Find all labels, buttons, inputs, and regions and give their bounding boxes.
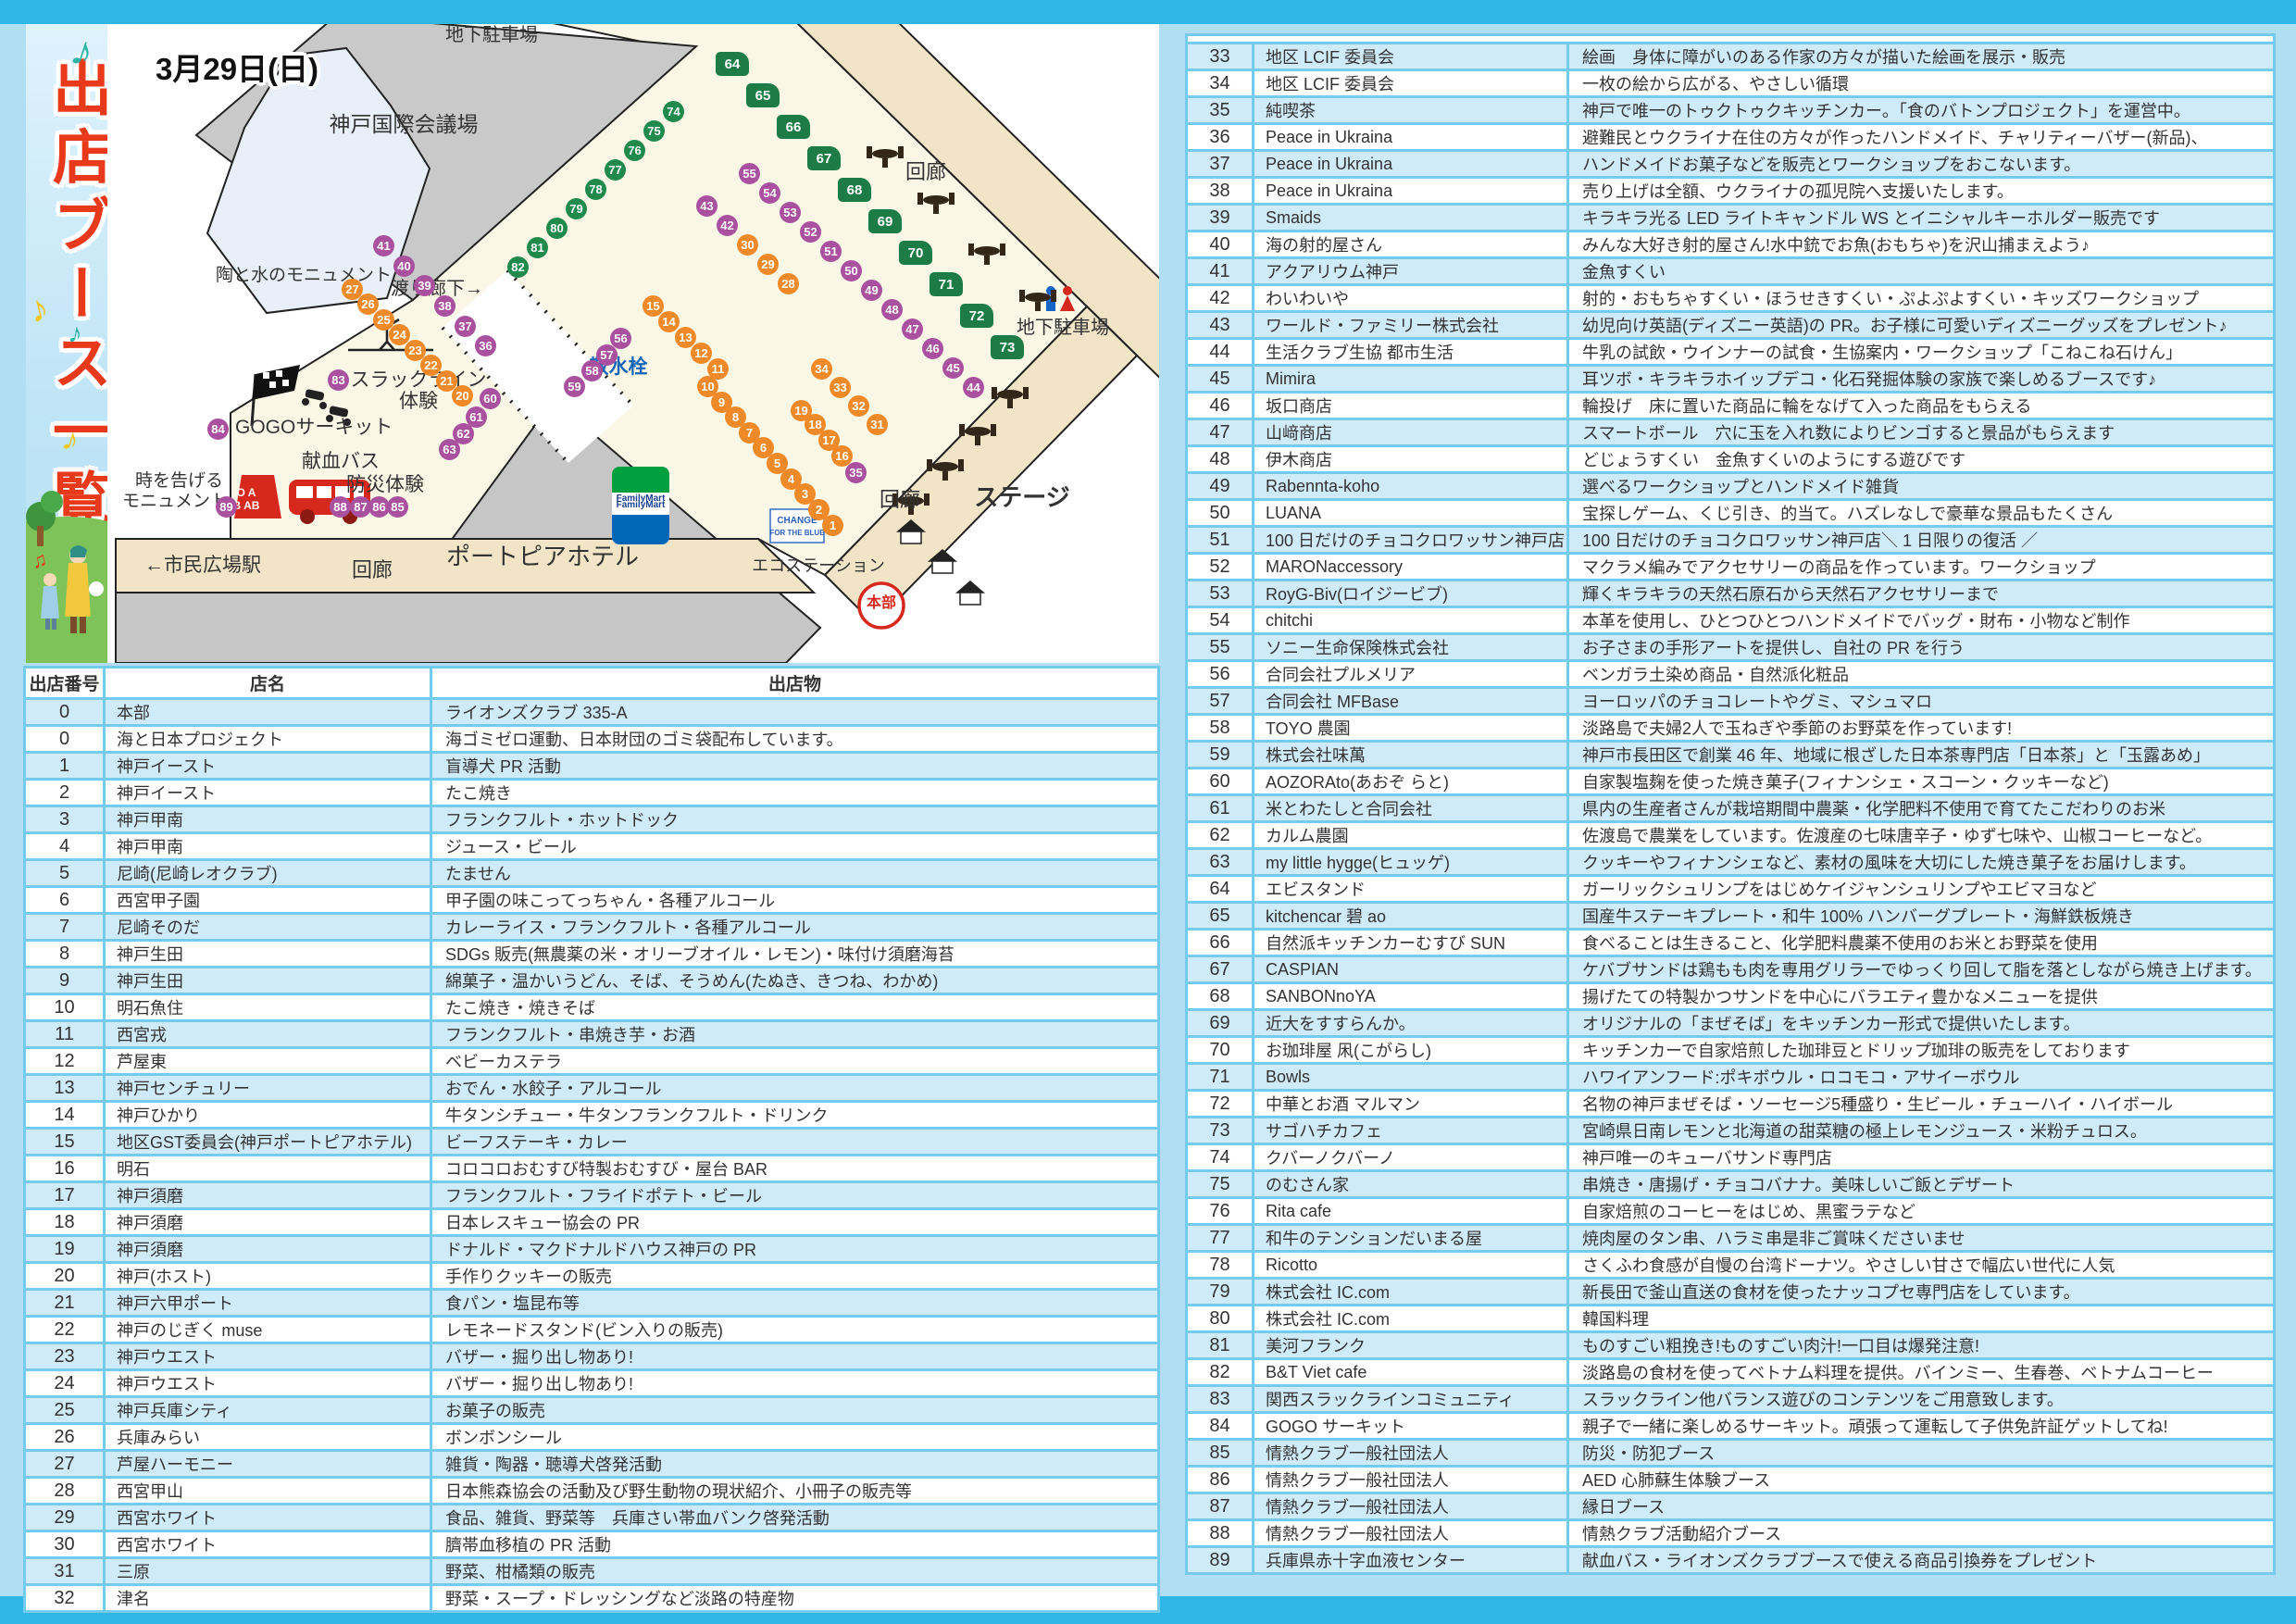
- shop-name: 神戸六甲ポート: [105, 1290, 431, 1317]
- table-row: 78Ricottoさくふわ食感が自慢の台湾ドーナツ。やさしい甘さで幅広い世代に人…: [1187, 1252, 2275, 1279]
- table-row: 24神戸ウエストバザー・掘り出し物あり!: [25, 1370, 1159, 1397]
- shop-name: 西宮ホワイト: [105, 1505, 431, 1531]
- booth-number: 87: [1187, 1493, 1254, 1520]
- header-shop-name: 店名: [105, 668, 431, 699]
- products: 避難民とウクライナ在住の方々が作ったハンドメイド、チャリティーバザー(新品)、: [1568, 124, 2275, 151]
- shop-name: 生活クラブ生協 都市生活: [1254, 339, 1568, 366]
- shop-name: Peace in Ukraina: [1254, 151, 1568, 178]
- booth-marker: 33: [830, 377, 851, 398]
- products: 一枚の絵から広がる、やさしい循環: [1568, 70, 2275, 97]
- products: おでん・水餃子・アルコール: [431, 1075, 1159, 1102]
- products: 牛乳の試飲・ウインナーの試食・生協案内・ワークショップ「こねこね石けん」: [1568, 339, 2275, 366]
- shop-name: my little hygge(ヒュッゲ): [1254, 849, 1568, 876]
- booth-marker: 77: [605, 159, 626, 181]
- shop-name: Rita cafe: [1254, 1198, 1568, 1225]
- booth-number: 15: [25, 1129, 105, 1156]
- shop-name: 西宮甲子園: [105, 887, 431, 914]
- booth-marker: 81: [527, 237, 548, 258]
- booth-number: 80: [1187, 1305, 1254, 1332]
- table-row: 28西宮甲山日本熊森協会の活動及び野生動物の現状紹介、小冊子の販売等: [25, 1478, 1159, 1505]
- booth-number: 46: [1187, 393, 1254, 419]
- shop-name: 神戸兵庫シティ: [105, 1397, 431, 1424]
- table-row: 74クバーノクバーノ神戸唯一のキューバサンド専門店: [1187, 1144, 2275, 1171]
- venue-map: FamilyMart CHANGE FOR THE BLUE: [107, 24, 1159, 663]
- table-row: 65kitchencar 碧 ao国産牛ステーキプレート・和牛 100% ハンバ…: [1187, 903, 2275, 930]
- products: 本革を使用し、ひとつひとつハンドメイドでバッグ・財布・小物など制作: [1568, 607, 2275, 634]
- products: 揚げたての特製かつサンドを中心にバラエティ豊かなメニューを提供: [1568, 983, 2275, 1010]
- shop-name: アクアリウム神戸: [1254, 258, 1568, 285]
- products: 食パン・塩昆布等: [431, 1290, 1159, 1317]
- table-row: 51100 日だけのチョコクロワッサン神戸店100 日だけのチョコクロワッサン神…: [1187, 527, 2275, 554]
- products: お菓子の販売: [431, 1397, 1159, 1424]
- products: 海ゴミゼロ運動、日本財団のゴミ袋配布しています。: [431, 726, 1159, 753]
- booth-marker: 28: [778, 273, 799, 294]
- products: 防災・防犯ブース: [1568, 1440, 2275, 1467]
- booth-marker: 38: [434, 295, 455, 317]
- shop-name: Peace in Ukraina: [1254, 178, 1568, 205]
- table-row: 23神戸ウエストバザー・掘り出し物あり!: [25, 1343, 1159, 1370]
- table-row: 8神戸生田SDGs 販売(無農薬の米・オリーブオイル・レモン)・味付け須磨海苔: [25, 941, 1159, 968]
- table-row: 31三原野菜、柑橘類の販売: [25, 1558, 1159, 1585]
- booth-marker: 44: [963, 377, 984, 398]
- table-row: 52MARONaccessoryマクラメ編みでアクセサリーの商品を作っています。…: [1187, 554, 2275, 581]
- table-row: 64エビスタンドガーリックシュリンプをはじめケイジャンシュリンプやエビマヨなど: [1187, 876, 2275, 903]
- booth-number: 12: [25, 1048, 105, 1075]
- booth-marker: 31: [867, 414, 888, 435]
- header-products: 出店物: [431, 668, 1159, 699]
- table-row: 44生活クラブ生協 都市生活牛乳の試飲・ウインナーの試食・生協案内・ワークショッ…: [1187, 339, 2275, 366]
- table-row: 20神戸(ホスト)手作りクッキーの販売: [25, 1263, 1159, 1290]
- booth-number: 7: [25, 914, 105, 941]
- table-row: 79株式会社 IC.com新長田で釜山直送の食材を使ったナッコプセ専門店をしてい…: [1187, 1279, 2275, 1305]
- products: 野菜・スープ・ドレッシングなど淡路の特産物: [431, 1585, 1159, 1612]
- title-strip: 出店ブース一覧 ♪♪♪♪ ♫: [26, 24, 107, 663]
- table-row: 80株式会社 IC.com韓国料理: [1187, 1305, 2275, 1332]
- shop-name: 神戸甲南: [105, 833, 431, 860]
- booth-marker: 41: [373, 235, 394, 256]
- booth-marker: 75: [643, 120, 665, 142]
- table-row: 71Bowlsハワイアンフード:ポキボウル・ロコモコ・アサイーボウル: [1187, 1064, 2275, 1091]
- products: 情熱クラブ活動紹介ブース: [1568, 1520, 2275, 1547]
- table-row: 5尼崎(尼崎レオクラブ)たません: [25, 860, 1159, 887]
- products: 献血バス・ライオンズクラブブースで使える商品引換券をプレゼント: [1568, 1547, 2275, 1574]
- shop-name: 株式会社味萬: [1254, 742, 1568, 768]
- familymart-text: FamilyMart: [617, 494, 666, 505]
- booth-number: 88: [1187, 1520, 1254, 1547]
- table-row: 19神戸須磨ドナルド・マクドナルドハウス神戸の PR: [25, 1236, 1159, 1263]
- products: 耳ツボ・キラキラホイップデコ・化石発掘体験の家族で楽しめるブースです♪: [1568, 366, 2275, 393]
- booth-number: 82: [1187, 1359, 1254, 1386]
- booth-number: 26: [25, 1424, 105, 1451]
- products: 射的・おもちゃすくい・ほうせきすくい・ぷよぷよすくい・キッズワークショップ: [1568, 285, 2275, 312]
- booth-marker: 12: [691, 343, 712, 364]
- table-row: 76Rita cafe自家焙煎のコーヒーをはじめ、黒蜜ラテなど: [1187, 1198, 2275, 1225]
- booth-number: 21: [25, 1290, 105, 1317]
- table-row: 81美河フランクものすごい粗挽き!ものすごい肉汁!一口目は爆発注意!: [1187, 1332, 2275, 1359]
- shop-name: B&T Viet cafe: [1254, 1359, 1568, 1386]
- shop-name: 中華とお酒 マルマン: [1254, 1091, 1568, 1118]
- booth-marker: 59: [564, 376, 585, 397]
- table-row: 37Peace in Ukrainaハンドメイドお菓子などを販売とワークショップ…: [1187, 151, 2275, 178]
- booth-number: 57: [1187, 688, 1254, 715]
- products: ライオンズクラブ 335-A: [431, 699, 1159, 726]
- table-row: 21神戸六甲ポート食パン・塩昆布等: [25, 1290, 1159, 1317]
- table-row: 61米とわたしと合同会社県内の生産者さんが栽培期間中農薬・化学肥料不使用で育てた…: [1187, 795, 2275, 822]
- products: フランクフルト・ホットドック: [431, 806, 1159, 833]
- products: 神戸市長田区で創業 46 年、地域に根ざした日本茶専門店「日本茶」と「玉露あめ」: [1568, 742, 2275, 768]
- booth-marker: 1: [822, 515, 843, 536]
- table-row: 34地区 LCIF 委員会一枚の絵から広がる、やさしい循環: [1187, 70, 2275, 97]
- shop-name: 自然派キッチンカーむすび SUN: [1254, 930, 1568, 956]
- table-row: 33地区 LCIF 委員会絵画 身体に障がいのある作家の方々が描いた絵画を展示・…: [1187, 44, 2275, 70]
- table-row: 45Mimira耳ツボ・キラキラホイップデコ・化石発掘体験の家族で楽しめるブース…: [1187, 366, 2275, 393]
- map-label: 献血バス: [302, 452, 380, 472]
- shop-name: 西宮ホワイト: [105, 1531, 431, 1558]
- products: ハンドメイドお菓子などを販売とワークショップをおこないます。: [1568, 151, 2275, 178]
- shop-name: LUANA: [1254, 500, 1568, 527]
- products: 手作りクッキーの販売: [431, 1263, 1159, 1290]
- table-row: 3神戸甲南フランクフルト・ホットドック: [25, 806, 1159, 833]
- shop-name: 神戸センチュリー: [105, 1075, 431, 1102]
- shop-name: 関西スラックラインコミュニティ: [1254, 1386, 1568, 1413]
- booth-number: 56: [1187, 661, 1254, 688]
- booth-number: 47: [1187, 419, 1254, 446]
- shop-name: 尼崎(尼崎レオクラブ): [105, 860, 431, 887]
- products: 100 日だけのチョコクロワッサン神戸店＼ 1 日限りの復活 ／: [1568, 527, 2275, 554]
- products: 国産牛ステーキプレート・和牛 100% ハンバーグプレート・海鮮鉄板焼き: [1568, 903, 2275, 930]
- shop-name: 合同会社プルメリア: [1254, 661, 1568, 688]
- booth-marker: 48: [881, 299, 903, 320]
- booth-number: 2: [25, 780, 105, 806]
- map-label: 時を告げる: [135, 472, 223, 491]
- shop-name: 地区 LCIF 委員会: [1254, 44, 1568, 70]
- table-row: 87情熱クラブ一般社団法人縁日ブース: [1187, 1493, 2275, 1520]
- table-row: 40海の射的屋さんみんな大好き射的屋さん!水中銃でお魚(おもちゃ)を沢山捕まえよ…: [1187, 231, 2275, 258]
- map-label: ポートピアホテル: [446, 544, 639, 569]
- table-row: 69近大をすすらんか。オリジナルの「まぜそば」をキッチンカー形式で提供いたします…: [1187, 1010, 2275, 1037]
- shop-name: 芦屋ハーモニー: [105, 1451, 431, 1478]
- booth-number: 41: [1187, 258, 1254, 285]
- booth-marker: 63: [439, 439, 460, 460]
- products: さくふわ食感が自慢の台湾ドーナツ。やさしい甘さで幅広い世代に人気: [1568, 1252, 2275, 1279]
- shop-name: Peace in Ukraina: [1254, 124, 1568, 151]
- shop-name: クバーノクバーノ: [1254, 1144, 1568, 1171]
- booth-number: 48: [1187, 446, 1254, 473]
- shop-name: 和牛のテンションだいまる屋: [1254, 1225, 1568, 1252]
- products: 自家製塩麹を使った焼き菓子(フィナンシェ・スコーン・クッキーなど): [1568, 768, 2275, 795]
- booth-rows-left: 0本部ライオンズクラブ 335-A0海と日本プロジェクト海ゴミゼロ運動、日本財団…: [25, 699, 1159, 1612]
- table-row: 77和牛のテンションだいまる屋焼肉屋のタン串、ハラミ串是非ご賞味くださいませ: [1187, 1225, 2275, 1252]
- shop-name: 神戸のじぎく muse: [105, 1317, 431, 1343]
- shop-name: 本部: [105, 699, 431, 726]
- booth-number: 49: [1187, 473, 1254, 500]
- products: お子さまの手形アートを提供し、自社の PR を行う: [1568, 634, 2275, 661]
- table-row: 4神戸甲南ジュース・ビール: [25, 833, 1159, 860]
- products: 淡路島で夫婦2人で玉ねぎや季節のお野菜を作っています!: [1568, 715, 2275, 742]
- products: 串焼き・唐揚げ・チョコバナナ。美味しいご飯とデザート: [1568, 1171, 2275, 1198]
- booth-number: 52: [1187, 554, 1254, 581]
- booth-marker: 37: [455, 316, 476, 337]
- products: スラックライン他バランス遊びのコンテンツをご用意致します。: [1568, 1386, 2275, 1413]
- booth-number: 54: [1187, 607, 1254, 634]
- shop-name: カルム農園: [1254, 822, 1568, 849]
- booth-marker: 20: [452, 385, 473, 406]
- shop-name: TOYO 農園: [1254, 715, 1568, 742]
- booth-number: 22: [25, 1317, 105, 1343]
- table-row: 39Smaidsキラキラ光る LED ライトキャンドル WS とイニシャルキーホ…: [1187, 205, 2275, 231]
- shop-name: Smaids: [1254, 205, 1568, 231]
- shop-name: 三原: [105, 1558, 431, 1585]
- shop-name: 神戸(ホスト): [105, 1263, 431, 1290]
- booth-number: 19: [25, 1236, 105, 1263]
- map-label: GOGOサーキット: [235, 418, 393, 438]
- table-row: 89兵庫県赤十字血液センター献血バス・ライオンズクラブブースで使える商品引換券を…: [1187, 1547, 2275, 1574]
- booth-number: 14: [25, 1102, 105, 1129]
- kitchen-car-marker: 68: [838, 178, 871, 202]
- booth-marker: 78: [585, 179, 606, 200]
- products: カレーライス・フランクフルト・各種アルコール: [431, 914, 1159, 941]
- booth-number: 70: [1187, 1037, 1254, 1064]
- products: 売り上げは全額、ウクライナの孤児院へ支援いたします。: [1568, 178, 2275, 205]
- table-row: 63my little hygge(ヒュッゲ)クッキーやフィナンシェなど、素材の…: [1187, 849, 2275, 876]
- shop-name: 情熱クラブ一般社団法人: [1254, 1467, 1568, 1493]
- table-row: 68SANBONnoYA揚げたての特製かつサンドを中心にバラエティ豊かなメニュー…: [1187, 983, 2275, 1010]
- table-row: 0本部ライオンズクラブ 335-A: [25, 699, 1159, 726]
- table-row: 84GOGO サーキット親子で一緒に楽しめるサーキット。頑張って運転して子供免許…: [1187, 1413, 2275, 1440]
- booth-number: 53: [1187, 581, 1254, 607]
- booth-number: 71: [1187, 1064, 1254, 1091]
- booth-number: 77: [1187, 1225, 1254, 1252]
- products: 日本熊森協会の活動及び野生動物の現状紹介、小冊子の販売等: [431, 1478, 1159, 1505]
- products: オリジナルの「まぜそば」をキッチンカー形式で提供いたします。: [1568, 1010, 2275, 1037]
- booth-number: 0: [25, 699, 105, 726]
- table-row: 54chitchi本革を使用し、ひとつひとつハンドメイドでバッグ・財布・小物など…: [1187, 607, 2275, 634]
- booth-number: 4: [25, 833, 105, 860]
- booth-number: 38: [1187, 178, 1254, 205]
- table-row: 32津名野菜・スープ・ドレッシングなど淡路の特産物: [25, 1585, 1159, 1612]
- products: 綿菓子・温かいうどん、そば、そうめん(たぬき、きつね、わかめ): [431, 968, 1159, 994]
- table-row: 41アクアリウム神戸金魚すくい: [1187, 258, 2275, 285]
- map-label: エコステーション: [752, 557, 885, 575]
- booth-marker: 83: [328, 369, 349, 391]
- shop-name: 西宮甲山: [105, 1478, 431, 1505]
- table-row: 56合同会社プルメリアベンガラ土染め商品・自然派化粧品: [1187, 661, 2275, 688]
- table-row: 22神戸のじぎく museレモネードスタンド(ビン入りの販売): [25, 1317, 1159, 1343]
- map-label: 体験: [399, 392, 438, 412]
- products: 淡路島の食材を使ってベトナム料理を提供。バインミー、生春巻、ベトナムコーヒー: [1568, 1359, 2275, 1386]
- shop-name: 神戸イースト: [105, 780, 431, 806]
- products: ヨーロッパのチョコレートやグミ、マシュマロ: [1568, 688, 2275, 715]
- shop-name: AOZORAto(あおぞ らと): [1254, 768, 1568, 795]
- products: コロコロおむすび特製おむすび・屋台 BAR: [431, 1156, 1159, 1182]
- shop-name: ソニー生命保険株式会社: [1254, 634, 1568, 661]
- shop-name: CASPIAN: [1254, 956, 1568, 983]
- shop-name: サゴハチカフェ: [1254, 1118, 1568, 1144]
- booth-number: 30: [25, 1531, 105, 1558]
- products: どじょうすくい 金魚すくいのようにする遊びです: [1568, 446, 2275, 473]
- products: ドナルド・マクドナルドハウス神戸の PR: [431, 1236, 1159, 1263]
- booth-number: 65: [1187, 903, 1254, 930]
- booth-marker: 79: [566, 198, 587, 219]
- shop-name: 米とわたしと合同会社: [1254, 795, 1568, 822]
- products: 甲子園の味こってっちゃん・各種アルコール: [431, 887, 1159, 914]
- booth-number: 85: [1187, 1440, 1254, 1467]
- products: 焼肉屋のタン串、ハラミ串是非ご賞味くださいませ: [1568, 1225, 2275, 1252]
- shop-name: 坂口商店: [1254, 393, 1568, 419]
- booth-marker: 88: [330, 496, 351, 518]
- booth-number: 74: [1187, 1144, 1254, 1171]
- booth-number: 79: [1187, 1279, 1254, 1305]
- booth-number: 60: [1187, 768, 1254, 795]
- products: キッチンカーで自家焙煎した珈琲豆とドリップ珈琲の販売をしております: [1568, 1037, 2275, 1064]
- booth-marker: 40: [393, 256, 415, 277]
- table-row: 73サゴハチカフェ宮崎県日南レモンと北海道の甜菜糖の極上レモンジュース・米粉チュ…: [1187, 1118, 2275, 1144]
- shop-name: 株式会社 IC.com: [1254, 1279, 1568, 1305]
- booth-marker: 58: [581, 360, 603, 381]
- shop-name: chitchi: [1254, 607, 1568, 634]
- table-row: 36Peace in Ukraina避難民とウクライナ在住の方々が作ったハンドメ…: [1187, 124, 2275, 151]
- booth-number: 23: [25, 1343, 105, 1370]
- products: 神戸唯一のキューバサンド専門店: [1568, 1144, 2275, 1171]
- booth-number: 34: [1187, 70, 1254, 97]
- booth-marker: 47: [902, 319, 923, 340]
- booth-number: 64: [1187, 876, 1254, 903]
- booth-marker: 34: [811, 358, 832, 380]
- products: 金魚すくい: [1568, 258, 2275, 285]
- table-row: 50LUANA宝探しゲーム、くじ引き、的当て。ハズレなしで豪華な景品もたくさん: [1187, 500, 2275, 527]
- booth-marker: 60: [480, 388, 501, 409]
- products: 食品、雑貨、野菜等 兵庫さい帯血バンク啓発活動: [431, 1505, 1159, 1531]
- table-row: 15地区GST委員会(神戸ポートピアホテル)ビーフステーキ・カレー: [25, 1129, 1159, 1156]
- products: AED 心肺蘇生体験ブース: [1568, 1467, 2275, 1493]
- shop-name: 神戸ウエスト: [105, 1370, 431, 1397]
- booth-number: 58: [1187, 715, 1254, 742]
- table-row: 29西宮ホワイト食品、雑貨、野菜等 兵庫さい帯血バンク啓発活動: [25, 1505, 1159, 1531]
- products: レモネードスタンド(ビン入りの販売): [431, 1317, 1159, 1343]
- table-row: 48伊木商店どじょうすくい 金魚すくいのようにする遊びです: [1187, 446, 2275, 473]
- booth-number: 8: [25, 941, 105, 968]
- booth-number: 25: [25, 1397, 105, 1424]
- booth-number: 20: [25, 1263, 105, 1290]
- shop-name: 100 日だけのチョコクロワッサン神戸店: [1254, 527, 1568, 554]
- table-row: 82B&T Viet cafe淡路島の食材を使ってベトナム料理を提供。バインミー…: [1187, 1359, 2275, 1386]
- booth-rows-right: 33地区 LCIF 委員会絵画 身体に障がいのある作家の方々が描いた絵画を展示・…: [1187, 44, 2275, 1574]
- table-row: 59株式会社味萬神戸市長田区で創業 46 年、地域に根ざした日本茶専門店「日本茶…: [1187, 742, 2275, 768]
- table-row: 12芦屋東ベビーカステラ: [25, 1048, 1159, 1075]
- shop-name: 株式会社 IC.com: [1254, 1305, 1568, 1332]
- booth-number: 61: [1187, 795, 1254, 822]
- blood-type-sign: O AB AB: [233, 486, 260, 513]
- booth-number: 81: [1187, 1332, 1254, 1359]
- booth-number: 37: [1187, 151, 1254, 178]
- booth-number: 78: [1187, 1252, 1254, 1279]
- products: 輝くキラキラの天然石原石から天然石アクセサリーまで: [1568, 581, 2275, 607]
- products: 臍帯血移植の PR 活動: [431, 1531, 1159, 1558]
- booth-number: 10: [25, 994, 105, 1021]
- booth-number: 1: [25, 753, 105, 780]
- booth-marker: 53: [780, 202, 801, 223]
- shop-name: 海と日本プロジェクト: [105, 726, 431, 753]
- booth-number: 69: [1187, 1010, 1254, 1037]
- booth-number: 36: [1187, 124, 1254, 151]
- products: たません: [431, 860, 1159, 887]
- booth-number: 33: [1187, 44, 1254, 70]
- booth-marker: 29: [757, 254, 779, 275]
- shop-name: お珈琲屋 凩(こがらし): [1254, 1037, 1568, 1064]
- map-label: 防災体験: [346, 475, 424, 495]
- kitchen-car-marker: 66: [777, 115, 810, 139]
- table-row: 6西宮甲子園甲子園の味こってっちゃん・各種アルコール: [25, 887, 1159, 914]
- booth-table-left: 出店番号 店名 出店物 0本部ライオンズクラブ 335-A0海と日本プロジェクト…: [23, 666, 1160, 1613]
- shop-name: 神戸ひかり: [105, 1102, 431, 1129]
- table-row: 0海と日本プロジェクト海ゴミゼロ運動、日本財団のゴミ袋配布しています。: [25, 726, 1159, 753]
- shop-name: 神戸須磨: [105, 1236, 431, 1263]
- table-top-strip: [1187, 35, 2275, 44]
- booth-number: 66: [1187, 930, 1254, 956]
- booth-number: 42: [1187, 285, 1254, 312]
- table-row: 66自然派キッチンカーむすび SUN食べることは生きること、化学肥料農薬不使用の…: [1187, 930, 2275, 956]
- booth-number: 16: [25, 1156, 105, 1182]
- products: 宮崎県日南レモンと北海道の甜菜糖の極上レモンジュース・米粉チュロス。: [1568, 1118, 2275, 1144]
- map-label: ステージ: [974, 485, 1069, 510]
- booth-number: 68: [1187, 983, 1254, 1010]
- table-row: 70お珈琲屋 凩(こがらし)キッチンカーで自家焙煎した珈琲豆とドリップ珈琲の販売…: [1187, 1037, 2275, 1064]
- map-label: 神戸国際会議場: [330, 113, 479, 135]
- products: ボンボンシール: [431, 1424, 1159, 1451]
- products: フランクフルト・フライドポテト・ビール: [431, 1182, 1159, 1209]
- table-row: 27芦屋ハーモニー雑貨・陶器・聴導犬啓発活動: [25, 1451, 1159, 1478]
- products: クッキーやフィナンシェなど、素材の風味を大切にした焼き菓子をお届けします。: [1568, 849, 2275, 876]
- kitchen-car-marker: 69: [868, 209, 902, 233]
- products: スマートボール 穴に玉を入れ数によりビンゴすると景品がもらえます: [1568, 419, 2275, 446]
- booth-table-right: 33地区 LCIF 委員会絵画 身体に障がいのある作家の方々が描いた絵画を展示・…: [1185, 33, 2276, 1575]
- booth-number: 43: [1187, 312, 1254, 339]
- products: ベンガラ土染め商品・自然派化粧品: [1568, 661, 2275, 688]
- map-label: 地下駐車場: [445, 26, 538, 45]
- map-label: 回廊: [352, 559, 393, 581]
- products: 名物の神戸まぜそば・ソーセージ5種盛り・生ビール・チューハイ・ハイボール: [1568, 1091, 2275, 1118]
- table-row: 60AOZORAto(あおぞ らと)自家製塩麹を使った焼き菓子(フィナンシェ・ス…: [1187, 768, 2275, 795]
- map-label: 回廊: [880, 489, 920, 510]
- header-booth-number: 出店番号: [25, 668, 105, 699]
- table-row: 18神戸須磨日本レスキュー協会の PR: [25, 1209, 1159, 1236]
- shop-name: 芦屋東: [105, 1048, 431, 1075]
- products: たこ焼き: [431, 780, 1159, 806]
- shop-name: Ricotto: [1254, 1252, 1568, 1279]
- booth-number: 72: [1187, 1091, 1254, 1118]
- shop-name: 地区GST委員会(神戸ポートピアホテル): [105, 1129, 431, 1156]
- shop-name: Rabennta-koho: [1254, 473, 1568, 500]
- booth-number: 27: [25, 1451, 105, 1478]
- table-row: 83関西スラックラインコミュニティスラックライン他バランス遊びのコンテンツをご用…: [1187, 1386, 2275, 1413]
- map-label: モニュメント: [122, 493, 228, 511]
- table-row: 57合同会社 MFBaseヨーロッパのチョコレートやグミ、マシュマロ: [1187, 688, 2275, 715]
- booth-marker: 51: [820, 241, 842, 262]
- booth-number: 67: [1187, 956, 1254, 983]
- kitchen-car-marker: 64: [716, 52, 749, 76]
- booth-marker: 85: [387, 496, 408, 518]
- booth-number: 0: [25, 726, 105, 753]
- map-label: 陶と水のモニュメント: [216, 267, 392, 285]
- table-header-row: 出店番号 店名 出店物: [25, 668, 1159, 699]
- shop-name: 神戸生田: [105, 968, 431, 994]
- booth-number: 63: [1187, 849, 1254, 876]
- booth-number: 59: [1187, 742, 1254, 768]
- kitchen-car-marker: 73: [991, 335, 1024, 359]
- shop-name: 情熱クラブ一般社団法人: [1254, 1520, 1568, 1547]
- booth-marker: 74: [663, 101, 684, 122]
- shop-name: Bowls: [1254, 1064, 1568, 1091]
